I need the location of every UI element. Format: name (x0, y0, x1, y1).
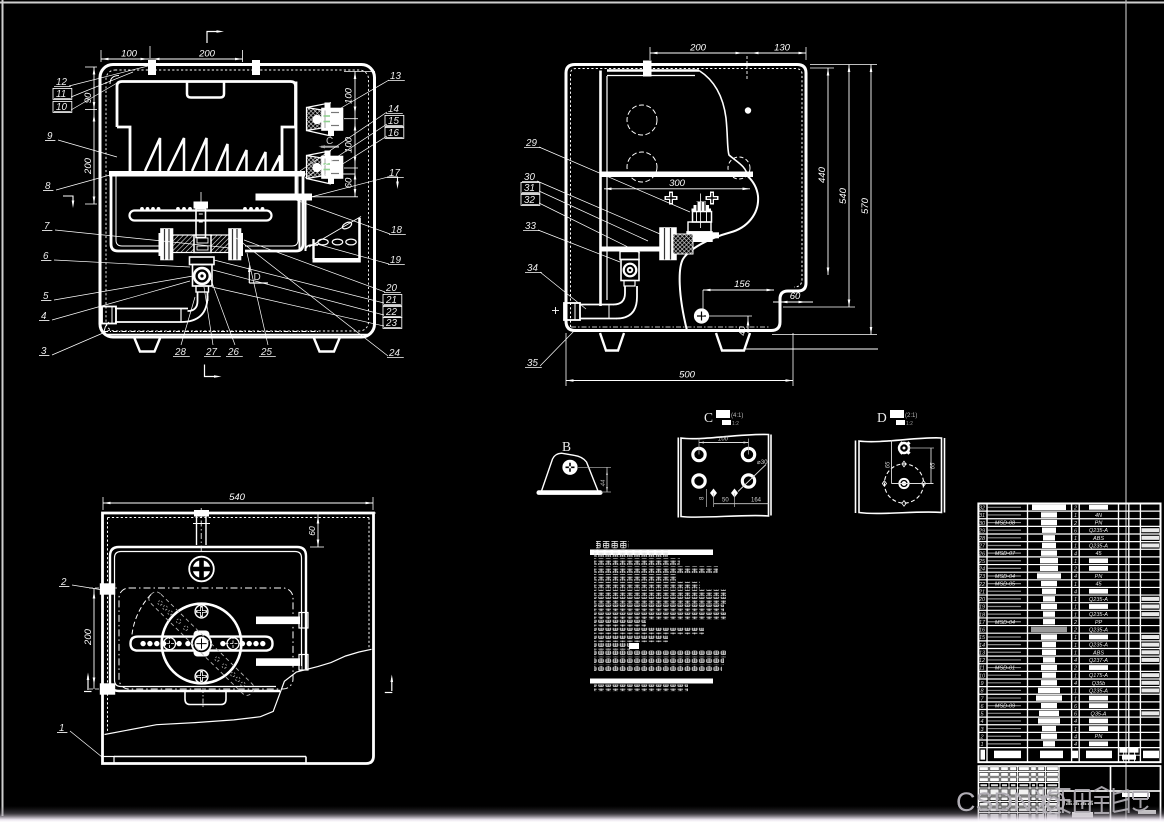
svg-text:25: 25 (978, 559, 986, 565)
svg-text:13: 13 (979, 650, 986, 656)
svg-text:4: 4 (980, 719, 983, 725)
svg-text:ABS: ABS (1092, 650, 1104, 656)
svg-text:MSD-09: MSD-09 (995, 704, 1015, 710)
svg-text:12: 12 (979, 658, 985, 664)
svg-text:(2:1): (2:1) (905, 413, 917, 419)
svg-text:1: 1 (1074, 582, 1077, 588)
svg-text:Q235-A: Q235-A (1089, 597, 1108, 603)
svg-text:200: 200 (83, 157, 94, 175)
svg-text:540: 540 (229, 492, 246, 503)
svg-text:2: 2 (979, 734, 983, 740)
svg-text:19: 19 (979, 605, 985, 611)
svg-text:1: 1 (1074, 696, 1077, 702)
svg-text:100: 100 (718, 437, 729, 443)
svg-text:1: 1 (1074, 513, 1077, 519)
svg-text:200: 200 (83, 628, 94, 646)
svg-text:4: 4 (1074, 589, 1077, 595)
svg-text:50: 50 (722, 498, 729, 504)
svg-text:1: 1 (1074, 559, 1077, 565)
svg-text:14: 14 (979, 643, 985, 649)
svg-text:Q35-A: Q35-A (1091, 711, 1107, 717)
svg-text:27: 27 (978, 544, 986, 550)
svg-text:1: 1 (1074, 673, 1077, 679)
svg-text:200: 200 (198, 49, 216, 60)
svg-text:PP: PP (1095, 620, 1103, 626)
svg-text:440: 440 (817, 166, 828, 183)
svg-text:570: 570 (860, 197, 871, 214)
svg-text:MSD-04: MSD-04 (995, 574, 1015, 580)
svg-text:2: 2 (1073, 567, 1077, 573)
svg-text:4: 4 (1074, 574, 1077, 580)
svg-text:2: 2 (1073, 628, 1077, 634)
svg-text:540: 540 (838, 187, 849, 204)
svg-text:MSD-08: MSD-08 (995, 521, 1016, 527)
svg-text:9: 9 (980, 681, 983, 687)
svg-text:16: 16 (979, 628, 986, 634)
svg-text:21: 21 (978, 589, 985, 595)
svg-text:1: 1 (1074, 536, 1077, 542)
svg-text:4: 4 (1074, 551, 1077, 557)
svg-text:PN: PN (1095, 734, 1103, 740)
svg-text:4: 4 (1074, 742, 1077, 748)
svg-text:1: 1 (1074, 650, 1077, 656)
svg-text:1:2: 1:2 (732, 421, 739, 427)
svg-text:45: 45 (1095, 582, 1102, 588)
svg-text:31: 31 (979, 513, 985, 519)
svg-text:4: 4 (1074, 719, 1077, 725)
svg-text:100: 100 (121, 49, 138, 60)
svg-text:Q235-A: Q235-A (1089, 627, 1108, 633)
svg-text:65: 65 (931, 462, 937, 469)
svg-text:60: 60 (307, 526, 317, 536)
svg-text:MSD-04: MSD-04 (995, 620, 1015, 626)
svg-text:45: 45 (1095, 551, 1102, 557)
svg-text:PN: PN (1095, 521, 1103, 527)
svg-text:100: 100 (344, 136, 355, 153)
svg-text:28: 28 (978, 536, 986, 542)
svg-text:156: 156 (734, 279, 751, 290)
svg-text:10: 10 (979, 673, 986, 679)
svg-text:2: 2 (1073, 506, 1077, 512)
svg-text:MSD-01: MSD-01 (995, 666, 1015, 672)
svg-text:23: 23 (978, 574, 986, 580)
svg-text:1: 1 (1074, 635, 1077, 641)
svg-text:200: 200 (689, 43, 707, 54)
svg-text:11: 11 (979, 666, 985, 672)
svg-text:4: 4 (1074, 658, 1077, 664)
svg-text:26: 26 (978, 551, 986, 557)
svg-text:PN: PN (1095, 574, 1103, 580)
svg-text:1: 1 (1074, 544, 1077, 550)
svg-text:32: 32 (979, 506, 985, 512)
svg-text:500: 500 (679, 370, 696, 381)
svg-text:20: 20 (978, 597, 986, 603)
svg-text:ABS: ABS (1092, 536, 1104, 542)
svg-text:22: 22 (978, 582, 985, 588)
svg-text:4: 4 (1074, 734, 1077, 740)
svg-text:1: 1 (980, 742, 983, 748)
svg-text:2: 2 (1073, 521, 1077, 527)
svg-text:17: 17 (979, 620, 986, 626)
svg-text:18: 18 (979, 612, 986, 618)
svg-text:15: 15 (979, 635, 986, 641)
svg-text:(4:1): (4:1) (731, 413, 743, 419)
svg-text:60: 60 (344, 177, 355, 188)
svg-text:1: 1 (1074, 605, 1077, 611)
svg-text:24: 24 (978, 567, 985, 573)
svg-text:40: 40 (737, 326, 747, 336)
svg-text:29: 29 (978, 528, 985, 534)
svg-text:1: 1 (1074, 689, 1077, 695)
svg-text:MSD-07: MSD-07 (995, 551, 1016, 557)
svg-text:Q235-A: Q235-A (1089, 543, 1108, 549)
svg-text:B: B (562, 439, 571, 454)
svg-text:MSD-05: MSD-05 (995, 582, 1016, 588)
svg-text:Q235-A: Q235-A (1089, 643, 1108, 649)
svg-text:65: 65 (886, 461, 892, 468)
svg-text:1: 1 (1074, 612, 1077, 618)
svg-text:1:2: 1:2 (906, 421, 913, 427)
svg-text:4: 4 (1074, 681, 1077, 687)
svg-text:⌀30: ⌀30 (757, 459, 768, 466)
svg-text:C: C (704, 410, 713, 425)
svg-text:44: 44 (601, 479, 607, 486)
svg-text:60: 60 (790, 291, 801, 302)
svg-text:C: C (326, 136, 333, 147)
svg-text:D: D (877, 410, 887, 425)
svg-text:30: 30 (979, 521, 986, 527)
svg-text:Q175-A: Q175-A (1089, 673, 1108, 679)
svg-text:164: 164 (751, 498, 762, 504)
svg-text:300: 300 (669, 178, 686, 189)
svg-text:Q235-A: Q235-A (1089, 612, 1108, 618)
svg-text:Q237-A: Q237-A (1089, 658, 1108, 664)
svg-text:Q235-A: Q235-A (1089, 528, 1108, 534)
svg-text:1: 1 (1074, 643, 1077, 649)
svg-text:130: 130 (774, 43, 791, 54)
svg-text:2: 2 (1073, 620, 1077, 626)
svg-text:Q35b: Q35b (1092, 681, 1105, 687)
svg-text:Q235-A: Q235-A (1089, 688, 1108, 694)
svg-text:2: 2 (1073, 666, 1077, 672)
svg-text:1: 1 (1074, 727, 1077, 733)
svg-text:4N: 4N (1095, 513, 1102, 519)
svg-text:1: 1 (1074, 597, 1077, 603)
